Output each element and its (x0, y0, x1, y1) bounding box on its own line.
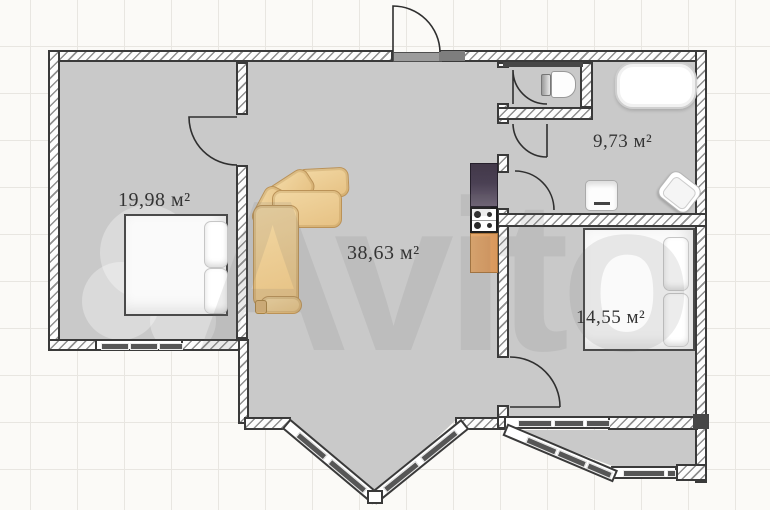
wc-door-arc (513, 70, 547, 104)
entrance-door-arc (393, 6, 440, 52)
room-label-bedroom-right: 14,55 м² (576, 307, 645, 329)
room-label-living-room: 38,63 м² (347, 242, 420, 265)
room-label-bedroom-left: 19,98 м² (118, 189, 191, 212)
bedroom-right-door-arc (510, 357, 560, 407)
bedroom-left-door-arc (189, 117, 237, 165)
room-label-bathroom: 9,73 м² (593, 131, 652, 153)
bathroom-door-arc-b (515, 171, 554, 210)
bathroom-door-arc-a (513, 124, 547, 157)
floor-plan: Avito 19,98 м² 38,63 м² 9,73 м² 14,55 м² (0, 0, 770, 510)
